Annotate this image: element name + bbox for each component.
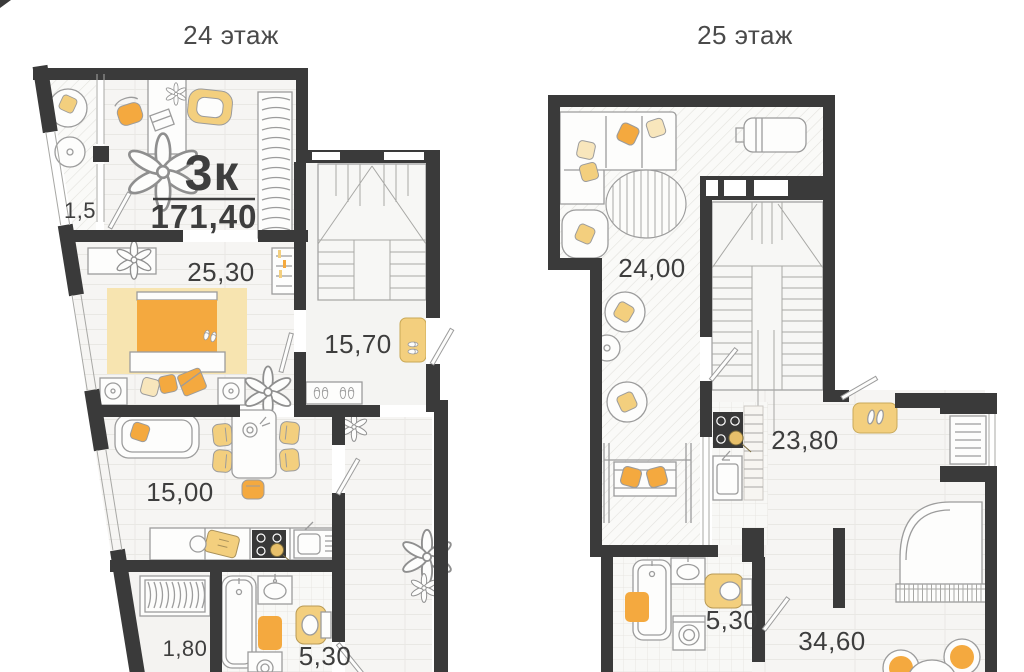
floor-25-title: 25 этаж [697, 20, 793, 50]
area-label-wardrobe-24: 1,80 [163, 636, 208, 661]
floor-plan-24: 1,5 3к 171,40 25,30 15,70 15,00 1,80 5,3… [33, 66, 454, 672]
area-label-bathroom-25: 5,30 [706, 605, 759, 635]
area-label-balcony-24: 1,5 [64, 198, 96, 223]
area-label-stair-hall-24: 15,70 [324, 329, 392, 359]
staircase-24-icon [318, 164, 426, 300]
shoe-mat-icon [853, 403, 897, 433]
bath-mat25-icon [625, 592, 649, 622]
kitchen-counter-icon [150, 522, 340, 562]
radiator-icon [950, 414, 995, 466]
closet-rail-icon [140, 576, 210, 616]
total-area-label: 171,40 [151, 198, 258, 235]
apartment-type-label: 3к [185, 145, 240, 201]
bathroom-sink-icon [258, 574, 292, 604]
bath-mat-icon [258, 616, 282, 650]
floorplan-canvas: 1,5 3к 171,40 25,30 15,70 15,00 1,80 5,3… [0, 0, 1024, 672]
corner-artifact [0, 0, 11, 8]
kitchen-sink-icon [713, 451, 742, 500]
area-label-living-24: 15,00 [146, 477, 214, 507]
stove-icon [252, 530, 291, 562]
area-label-kitchen-25: 23,80 [771, 425, 839, 455]
area-label-bathroom-24: 5,30 [299, 641, 352, 671]
corridor-floor [345, 417, 432, 672]
area-label-living-25: 34,60 [798, 626, 866, 656]
toilet-icon [296, 606, 331, 644]
shoe-cabinet-icon [400, 318, 426, 362]
floorplan-drawing: 1,5 3к 171,40 25,30 15,70 15,00 1,80 5,3… [0, 0, 1024, 672]
area-label-terrace-25: 24,00 [618, 253, 686, 283]
floor-24-title: 24 этаж [183, 20, 279, 50]
wardrobe-hangers-icon [258, 92, 292, 238]
washing-machine25-icon [673, 616, 705, 650]
armchair-icon [186, 88, 233, 126]
toilet25-icon [705, 574, 752, 608]
sun-lounger-icon [736, 118, 806, 152]
lounge-chair-icon [562, 210, 608, 258]
bookshelf-icon [272, 248, 296, 294]
bathroom-sink25-icon [671, 557, 705, 584]
sofa-icon [115, 414, 199, 458]
washing-machine-icon [248, 652, 282, 672]
area-label-bedroom-24: 25,30 [187, 257, 255, 287]
floor-plan-25: 24,00 23,80 5,30 34,60 [548, 95, 997, 672]
slipper-mat-icon [306, 382, 362, 404]
